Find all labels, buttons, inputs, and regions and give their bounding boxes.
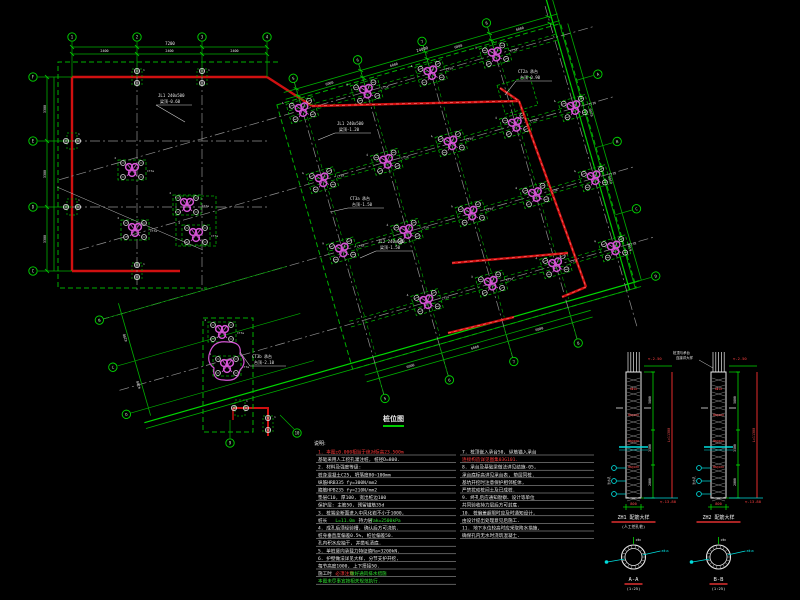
beam-line <box>331 180 600 257</box>
pile-cross <box>419 68 422 69</box>
pile-cross <box>372 82 375 83</box>
leader-dot <box>690 561 693 564</box>
cap-tag: CT3a <box>202 204 209 208</box>
section-hatch <box>713 564 715 567</box>
pile-cross <box>412 222 415 223</box>
pile-cross <box>314 189 317 190</box>
dim-text: 5800 <box>648 396 652 404</box>
dim-text: 7200 <box>165 41 175 46</box>
note-left-text: 垫层C10, 厚100, 宽出桩边100 <box>318 494 386 501</box>
note-right-text: 共同验收持力层后方可封底. <box>462 502 520 509</box>
plan-title: 桩位图 <box>383 414 404 427</box>
pile-cross <box>419 311 422 312</box>
section-scale: (1:25) <box>627 586 641 591</box>
leader-pointer <box>156 105 185 122</box>
section-inner <box>625 549 642 566</box>
pile-cross <box>565 269 568 270</box>
pile-tag: 1 <box>274 415 276 419</box>
dim-text: 3300 <box>43 105 47 113</box>
pile-cap-cluster: CT3a4 <box>470 264 515 298</box>
dim-line <box>365 310 591 375</box>
pile-cap-cluster: CT3a4 <box>475 35 520 69</box>
section-hatch <box>631 545 632 548</box>
dim-text: 2400 <box>100 49 108 53</box>
section-hatch <box>624 549 627 551</box>
leader-line2: 台顶-1.50 <box>352 201 373 207</box>
note-left-text: 施工时 <box>318 570 332 577</box>
section-leader-text: 8Φ16 <box>662 549 669 553</box>
cad-drawing: 12347200240024002400FEDC3300330033001111… <box>0 0 800 600</box>
pile-cross <box>436 306 439 307</box>
weep-hole <box>612 492 617 497</box>
section-hatch <box>709 562 712 564</box>
pile-cap-cluster: CT3a4 <box>450 194 495 228</box>
section-hatch <box>716 565 717 568</box>
note-left-text: 桩长 <box>318 517 328 524</box>
pile-cross <box>507 134 510 135</box>
note-left-text: 2. 材料及强度等级: <box>318 464 361 471</box>
note-left-text: 桩身垂直度偏差0.5%, 桩位偏差50. <box>318 532 393 539</box>
section-scale: (1:25) <box>712 586 726 591</box>
pile-cross <box>378 170 381 171</box>
leader-note: JL1 240x500梁顶-0.60 <box>156 93 192 122</box>
cap-tag: CT3a <box>421 225 429 231</box>
dim-tick <box>487 31 492 36</box>
cap-num: 4 <box>281 101 284 105</box>
pile-cap-cluster: CT3a4 <box>594 229 639 263</box>
leader-line1: CT3a 承台 <box>350 195 370 201</box>
dim-text: 3300 <box>43 235 47 243</box>
cap-tag: CT3a <box>381 84 389 90</box>
pile-cross <box>456 134 459 135</box>
dim-tick <box>489 38 494 43</box>
thin-leader <box>57 187 203 250</box>
dim-text: 2400 <box>165 49 173 53</box>
leader-line2: 梁顶-0.60 <box>160 98 181 104</box>
dim-line <box>118 303 150 415</box>
pile-cross <box>395 227 398 228</box>
note-right-text: 确保孔内无水时浇筑混凝土. <box>462 532 520 539</box>
pile-cross <box>487 63 490 64</box>
section-hatch <box>640 549 643 551</box>
bar-callout: Φ8@100 <box>628 413 639 417</box>
pile-cross <box>439 139 442 140</box>
section-name: B-B <box>714 577 725 583</box>
group-outline <box>203 318 253 432</box>
note-right-text: 由设计提出处理意见后施工. <box>462 517 520 524</box>
pile-cross <box>566 117 569 118</box>
cap-num: 4 <box>450 204 453 208</box>
note-left-text: 孔内积水应抽干, 并凿毛清底. <box>318 540 381 547</box>
section-hatch <box>707 553 710 554</box>
cad-viewport: 12347200240024002400FEDC3300330033001111… <box>0 0 800 600</box>
bubble-stem <box>104 266 287 318</box>
cap-tag: CT3a <box>147 169 154 173</box>
note-left-text: 每节高度1000, 上下搭接50. <box>318 563 380 570</box>
dim-tick <box>425 56 430 61</box>
weep-hole <box>697 479 702 484</box>
note-left-text: 4. 成孔后须经验槽, 确认后方可浇筑. <box>318 525 399 532</box>
section-hatch <box>641 560 644 561</box>
pile-cross <box>307 100 310 101</box>
bubble-stem <box>596 143 612 148</box>
dim-text: 3300 <box>43 170 47 178</box>
pile-cross <box>440 77 443 78</box>
cap-tag: CT3a <box>211 234 218 238</box>
pile-cross <box>392 152 395 153</box>
detail-subtitle: (人工挖孔桩) <box>622 524 646 529</box>
top-elev: ▽-2.50 <box>733 356 747 361</box>
cap-num: 4 <box>410 64 413 68</box>
pile-cross <box>358 100 361 101</box>
note-left-text: 5. 单桩竖向承载力特征值Ra=3200kN. <box>318 547 400 554</box>
section-hatch <box>622 560 625 561</box>
pile-cross <box>290 105 293 106</box>
pile-cross <box>586 187 589 188</box>
dim-text: 2400 <box>230 49 238 53</box>
dim-tick <box>358 68 363 73</box>
pile-cross <box>483 50 486 51</box>
note-right-text: 9. 终孔后应通知勘察、设计等单位 <box>462 494 535 501</box>
pile-cross <box>476 204 479 205</box>
bubble-stem <box>615 210 631 215</box>
note-left-text: 6. 护壁做法详见大样, 分节支护开挖, <box>318 555 399 562</box>
bar-callout: Φ8@100 <box>713 413 724 417</box>
leader-dot <box>605 561 608 564</box>
pile-cap-cluster: CT3a4 <box>410 53 455 87</box>
pile-cross <box>310 175 313 176</box>
cap-num: 4 <box>573 169 576 173</box>
dim-text: 3500 <box>733 444 737 452</box>
pile-cross <box>330 246 333 247</box>
leader-line1: CT2a 承台 <box>518 68 538 74</box>
pile-cross <box>463 222 466 223</box>
weep-hole <box>612 479 617 484</box>
pile-cross <box>606 257 609 258</box>
dim-tick <box>294 86 299 91</box>
red-wall-diag <box>267 77 312 106</box>
pile-tag: 1 <box>143 262 145 266</box>
pile-cross <box>602 244 605 245</box>
cap-tag: CT3a <box>441 295 449 301</box>
note-left-text: 保护层: 主筋50, 预留锚筋35d <box>318 502 384 509</box>
cap-tag: CT3a <box>401 155 409 161</box>
red-beam <box>448 317 514 333</box>
leader-note: JL1 240x500梁顶-1.20 <box>318 121 371 140</box>
section-hatch <box>635 565 636 568</box>
pile-cross <box>331 184 334 185</box>
bottom-elev: ▽-13.80 <box>745 499 762 504</box>
overall-text: L=11300 <box>752 428 756 442</box>
note-left-text: 纵筋HRB335 fy=300N/mm2 <box>318 479 377 486</box>
ring-note: 2Φ8 <box>721 538 727 542</box>
pile-cross <box>415 297 418 298</box>
pile-cap-cluster: CT3a4 <box>322 231 367 265</box>
note-right-text: 10. 桩偏差超限时应及时通知设计, <box>462 509 536 516</box>
section-name: A-A <box>629 577 640 583</box>
section-hatch <box>713 547 715 550</box>
pile-cap-cluster: CT3a4 <box>114 156 154 180</box>
cap-num: 4 <box>366 153 369 157</box>
detail-title: ZH1 配筋大样 <box>617 514 649 521</box>
det-leader1: 桩顶与承台 <box>673 350 691 355</box>
note-right-text: 严禁扰动桩间土及已成桩. <box>462 487 515 494</box>
weep-label: 泄水孔 <box>691 476 696 485</box>
dim-text: 2000 <box>648 478 652 486</box>
pile-cross <box>483 292 486 293</box>
width-text: 800 <box>715 502 722 506</box>
bar-callout: Φ8@200 <box>628 439 639 443</box>
section-hatch <box>641 553 644 554</box>
note-right-text: 基坑开挖时注意保护相邻桩体, <box>462 479 525 486</box>
cap-tag: CT3a <box>588 101 596 107</box>
bottom-edge <box>144 281 639 423</box>
pile-cross <box>500 287 503 288</box>
pile-cross <box>436 63 439 64</box>
pile-cross <box>354 87 357 88</box>
cap-tag: CT3a <box>629 241 637 247</box>
ortho-part: 12347200240024002400FEDC3300330033001111… <box>29 33 312 292</box>
notes-block: 1. 本图±0.000相当于绝对标高23.500m 基础采用人工挖孔灌注桩, 桩… <box>316 449 594 585</box>
note-left-text: 本图未尽事宜按相关规范执行. <box>318 578 381 585</box>
right-edge2 <box>552 0 636 288</box>
pile-cross <box>524 129 527 130</box>
dim-text: 5800 <box>733 396 737 404</box>
note-left-text: 桩身混凝土C25, 坍落度80~100mm <box>318 471 391 478</box>
pile-cross <box>375 157 378 158</box>
leader-line2: 台顶-0.90 <box>520 74 541 80</box>
section-hatch <box>638 564 640 567</box>
note-right-text: 8. 承台及基础梁做法详见结施-05, <box>462 464 537 471</box>
cap-num: 4 <box>117 216 119 220</box>
cap-tag: CT3a <box>337 173 345 179</box>
cap-num: 4 <box>322 241 325 245</box>
pile-cross <box>523 190 526 191</box>
dim-text: 24000 <box>416 45 430 53</box>
cap-tag: CT3a <box>506 276 514 282</box>
edge-pile-pair: 1 <box>263 415 276 433</box>
cap-num: 4 <box>114 156 116 160</box>
section-hatch <box>716 545 717 548</box>
cap-num: 4 <box>515 186 518 190</box>
bar-callout: Φ8@100 <box>713 465 724 469</box>
section-leader-text: 8Φ18 <box>747 549 754 553</box>
pile-detail-1: 8Φ16Φ8@100Φ8@200Φ8@100泄水孔580035002000L=1… <box>605 352 678 591</box>
note-left-text: 箍筋HPB235 fy=210N/mm2 <box>318 487 377 494</box>
pile-cap-cluster: CT3a4 <box>430 124 475 158</box>
pile-cap-cluster: CT3a4 <box>346 72 391 106</box>
pile-cross <box>396 165 399 166</box>
pile-cross <box>327 171 330 172</box>
bar-callout: Φ8@100 <box>628 465 639 469</box>
pile-cross <box>541 185 544 186</box>
leader-note: JL2 240x600梁顶-1.50 <box>360 239 412 258</box>
cap-num: 4 <box>553 99 556 103</box>
section-hatch <box>725 549 728 551</box>
pile-cross <box>351 254 354 255</box>
pile-cross <box>348 241 351 242</box>
section-hatch <box>640 562 643 564</box>
cap-num: 4 <box>594 239 597 243</box>
note-right-text: 承台底标高详见承台表, 垫层同桩. <box>462 471 535 478</box>
pile-cross <box>376 95 379 96</box>
cap-num: 4 <box>470 275 473 279</box>
pile-cross <box>311 114 314 115</box>
pile-cross <box>496 274 499 275</box>
pile-cap-cluster: CT3a4 <box>178 221 218 245</box>
weep-hole <box>612 466 617 471</box>
cap-num: 4 <box>430 134 433 138</box>
section-hatch <box>720 565 721 568</box>
pile-cross <box>501 45 504 46</box>
section-hatch <box>720 545 721 548</box>
section-hatch <box>624 562 627 564</box>
pile-tag: 1 <box>208 68 210 72</box>
section-hatch <box>635 545 636 548</box>
cap-tag: CT3a <box>510 47 518 53</box>
cap-num: 4 <box>386 223 389 227</box>
section-hatch <box>628 547 630 550</box>
pile-cap-cluster: CT3a4 <box>204 318 244 342</box>
bottom-elev: ▽-13.80 <box>660 499 677 504</box>
pile-cross <box>504 58 507 59</box>
pile-cross <box>503 120 506 121</box>
bubble-stem <box>280 415 294 429</box>
pile-cap-cluster: CT3a4 <box>573 159 618 193</box>
bar-callout: Φ8@200 <box>713 439 724 443</box>
section-hatch <box>709 549 712 551</box>
leader-line2: 梁顶-1.50 <box>380 244 401 250</box>
section-hatch <box>723 547 725 550</box>
section-hatch <box>638 547 640 550</box>
cap-tag: CT3a <box>357 243 365 249</box>
note-left-text: 1. 本图±0.000相当于绝对标高23.500m <box>318 449 404 456</box>
pile-cap-cluster: CT3a4 <box>281 90 326 124</box>
pile-cross <box>545 199 548 200</box>
cap-num: 4 <box>301 171 304 175</box>
pile-tag: 1 <box>78 198 80 202</box>
leader-pointer <box>360 251 376 258</box>
detail-title: ZH2 配筋大样 <box>702 514 734 521</box>
dim-line <box>286 21 560 100</box>
bubble-stem <box>131 361 314 413</box>
leader-pointer <box>318 133 335 140</box>
leader-line1: CT3b 承台 <box>252 353 272 359</box>
pile-cross <box>416 236 419 237</box>
dim-line <box>284 14 558 93</box>
note-right-text: 连接构造详见图集03G101. <box>462 456 518 463</box>
cap-tag: CT3a <box>485 206 493 212</box>
overall-text: L=11300 <box>667 428 671 442</box>
pile-cross <box>561 255 564 256</box>
section-hatch <box>723 564 725 567</box>
pile-cross <box>547 274 550 275</box>
dim-tick <box>548 21 553 26</box>
weep-hole <box>697 492 702 497</box>
pile-cross <box>527 204 530 205</box>
cap-num: 4 <box>204 318 206 322</box>
note-left-text: fak=2500kPa <box>370 518 401 524</box>
bubble-stem <box>635 277 651 282</box>
pile-cross <box>582 173 585 174</box>
pile-cross <box>443 152 446 153</box>
pile-tag: 1 <box>78 132 80 136</box>
ring-note: 2Φ8 <box>636 538 642 542</box>
stair-pile-group: CT3a4CT3a4910 <box>203 318 301 447</box>
section-hatch <box>725 562 728 564</box>
pile-cross <box>479 279 482 280</box>
cap-tag: CT3a <box>237 331 244 335</box>
leader-line1: JL2 240x600 <box>378 239 405 244</box>
pile-cap-cluster: CT3a4 <box>366 142 411 176</box>
axis-line <box>545 6 637 326</box>
pile-tag: 1 <box>143 68 145 72</box>
pile-cap-cluster: CT3a4 <box>169 191 209 215</box>
pile-cap-cluster: CT3a4 <box>406 282 451 316</box>
section-hatch <box>631 565 632 568</box>
pile-tag: 1 <box>246 399 248 403</box>
cap-tag: CT3a <box>445 66 453 72</box>
section-hatch <box>707 560 710 561</box>
pile-cross <box>294 119 297 120</box>
cap-num: 4 <box>495 116 498 120</box>
leader-line2: 台顶-2.10 <box>254 359 275 365</box>
pile-cross <box>423 82 426 83</box>
note-left-text: 做好通风排水措施 <box>350 570 387 577</box>
cap-tag: CT3a <box>609 171 617 177</box>
leader-line1: JL1 240x500 <box>158 93 185 98</box>
pile-detail-2: 8Φ18Φ8@100Φ8@200Φ8@100泄水孔580035002000L=1… <box>673 350 763 591</box>
cap-num: 4 <box>406 293 409 297</box>
pile-cross <box>544 260 547 261</box>
bubble-stem <box>577 76 593 81</box>
leader-note: CT3a 承台台顶-1.50 <box>330 195 384 212</box>
det-leader2: 连接详大样 <box>676 355 694 360</box>
pile-cross <box>480 217 483 218</box>
note-right-text: 7. 桩顶嵌入承台50, 纵筋锚入承台 <box>462 449 537 456</box>
section-inner <box>710 549 727 566</box>
red-runs: 11 <box>231 88 586 436</box>
leader-pointer <box>330 208 348 212</box>
section-hatch <box>726 553 729 554</box>
top-elev: ▽-2.50 <box>648 356 662 361</box>
cap-num: 4 <box>169 191 171 195</box>
axis-line <box>358 60 450 380</box>
note-left-text: 3. 桩端全断面进入中风化岩不小于1000, <box>318 509 404 516</box>
pile-cross <box>562 103 565 104</box>
weep-label: 泄水孔 <box>606 476 611 485</box>
note-left-text: L=11.0m <box>335 518 355 524</box>
section-hatch <box>628 564 630 567</box>
bar-callout: 8Φ16 <box>630 387 637 391</box>
det-leader-line <box>699 360 713 368</box>
cap-tag: CT3a <box>530 118 538 124</box>
grid-bubble-label: 10 <box>295 431 300 436</box>
red-beam-hatch <box>312 101 519 106</box>
dim-tick <box>546 14 551 19</box>
pile-cross <box>432 292 435 293</box>
pile-cap-cluster: CT3a4 <box>515 175 560 209</box>
leader-line2: 梁顶-1.20 <box>339 126 360 132</box>
pile-cap-cluster: CT3a4 <box>301 161 346 195</box>
section-hatch <box>726 560 729 561</box>
pile-cap-cluster: CT3a4 <box>495 105 540 139</box>
dim-tick <box>360 75 365 80</box>
weep-hole <box>697 466 702 471</box>
leader-line1: JL1 240x500 <box>337 121 364 126</box>
pile-cross <box>334 259 337 260</box>
notes-header: 说明: <box>314 440 326 447</box>
